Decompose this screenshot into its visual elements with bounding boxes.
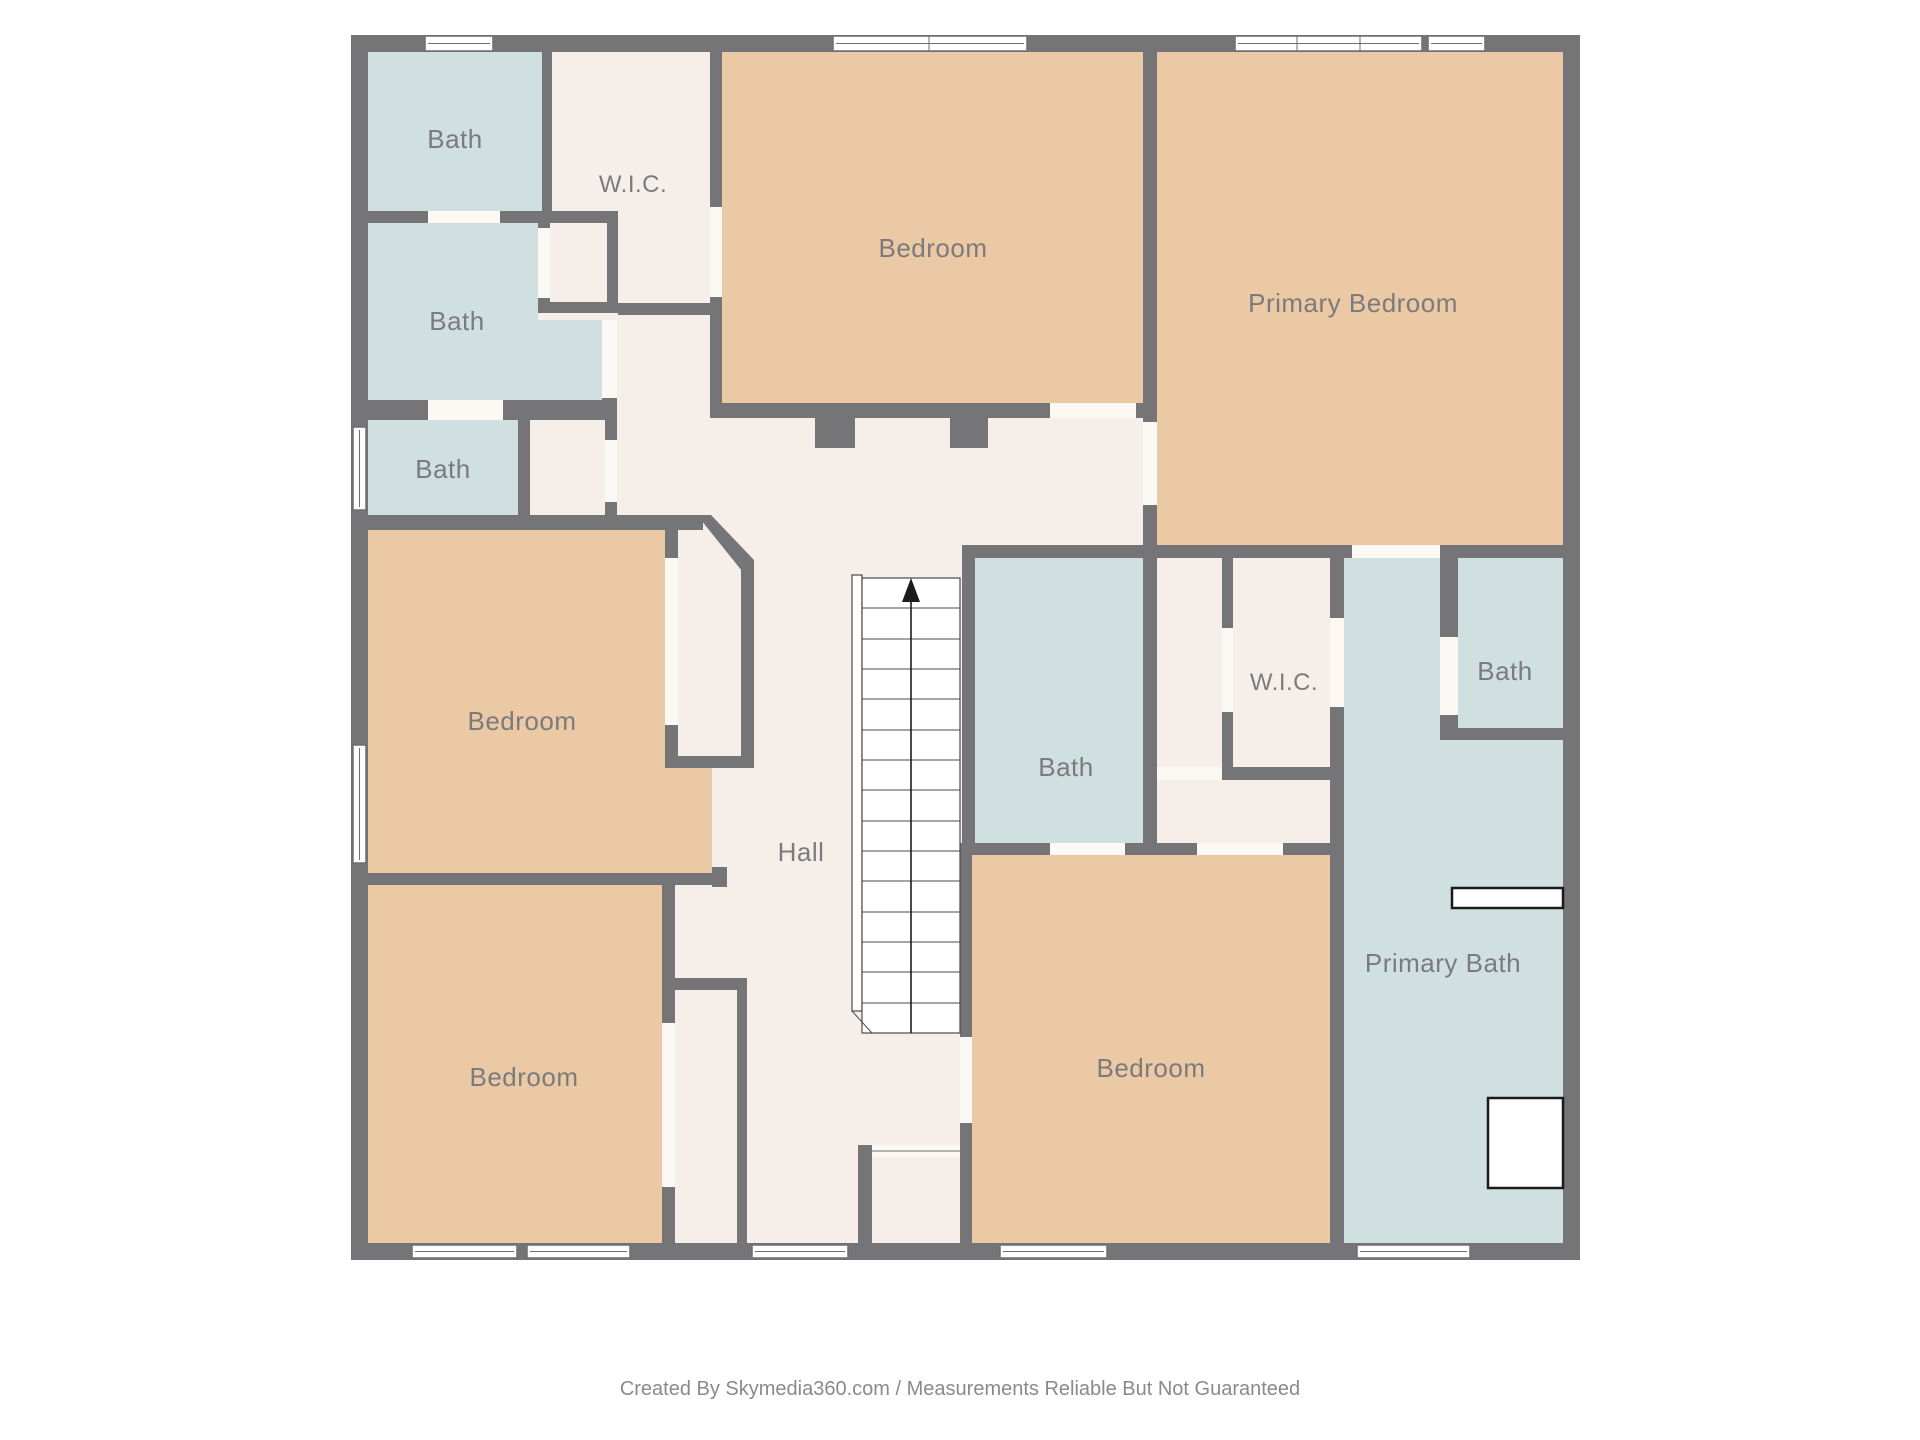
primary-bath-shower <box>1488 1098 1563 1188</box>
room-area-bedroom-top-center <box>722 52 1143 403</box>
room-area-bath-top-right <box>1458 558 1563 728</box>
window-top-bath <box>425 36 493 51</box>
room-label-bedroom-top-center: Bedroom <box>879 233 988 263</box>
room-label-wic-right: W.I.C. <box>1250 669 1318 696</box>
window-left-bedroom <box>353 745 366 863</box>
room-label-bedroom-middle-left: Bedroom <box>468 706 577 736</box>
credit-line: Created By Skymedia360.com / Measurement… <box>0 1378 1920 1401</box>
window-top-primary-2 <box>1428 36 1485 51</box>
room-area-bedroom-middle-left <box>368 530 712 873</box>
floor-plan-svg: Bath W.I.C. Bath Bath Bedroom Primary Be… <box>0 0 1920 1440</box>
room-label-bath-left-middle: Bath <box>429 306 485 336</box>
room-label-primary-bedroom: Primary Bedroom <box>1248 288 1458 318</box>
room-label-hall: Hall <box>778 837 825 867</box>
window-bottom-primary-bath <box>1357 1245 1470 1258</box>
window-bottom-bedroom-center <box>1000 1245 1107 1258</box>
room-label-bath-top-left: Bath <box>427 124 483 154</box>
room-label-primary-bath: Primary Bath <box>1365 948 1521 978</box>
staircase <box>852 575 960 1033</box>
room-label-bedroom-bottom-left: Bedroom <box>470 1062 579 1092</box>
window-bottom-hall <box>752 1245 848 1258</box>
floor-plan-page: Bath W.I.C. Bath Bath Bedroom Primary Be… <box>0 0 1920 1440</box>
room-label-bedroom-bottom-center: Bedroom <box>1097 1053 1206 1083</box>
stair-railing <box>852 575 862 1011</box>
window-top-bedroom <box>833 36 1027 51</box>
room-area-bedroom-bottom-center <box>972 855 1330 1243</box>
primary-bath-counter <box>1452 888 1563 908</box>
window-bottom-bedroom-left-1 <box>412 1245 517 1258</box>
room-label-wic-top-left: W.I.C. <box>599 171 667 198</box>
room-label-bath-left-lower: Bath <box>415 454 471 484</box>
window-left-bath <box>353 427 366 510</box>
window-bottom-bedroom-left-2 <box>527 1245 630 1258</box>
room-area-bath-center <box>975 558 1143 843</box>
window-top-primary-1 <box>1235 36 1422 51</box>
room-label-bath-top-right: Bath <box>1477 656 1533 686</box>
room-label-bath-center: Bath <box>1038 752 1094 782</box>
